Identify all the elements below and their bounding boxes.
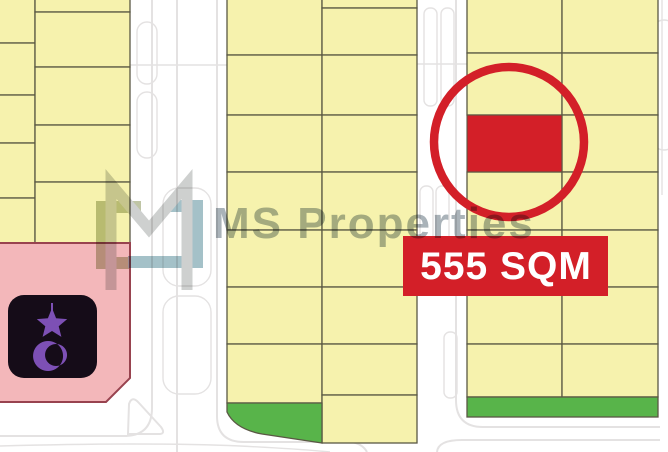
plot [35, 67, 130, 125]
plot [467, 344, 562, 397]
plot [322, 0, 417, 8]
ms-monogram-logo [102, 184, 197, 290]
plot [227, 0, 322, 55]
plot-map-image[interactable]: 555 SQM MS Properties [0, 0, 668, 452]
plot [322, 115, 417, 172]
green-space [227, 403, 322, 443]
parking-bay [137, 92, 157, 158]
plot [467, 0, 562, 53]
plot [322, 55, 417, 115]
plot [562, 115, 658, 172]
curb-line [437, 440, 660, 452]
plot [0, 0, 35, 43]
plot [562, 344, 658, 397]
plot [0, 43, 35, 95]
parking-bay [163, 296, 211, 394]
plot [35, 0, 130, 12]
plot [227, 115, 322, 172]
plot [322, 344, 417, 395]
map-svg: 555 SQM MS Properties [0, 0, 668, 452]
plot [322, 8, 417, 55]
area-label-text: 555 SQM [420, 245, 592, 288]
plot [322, 395, 417, 443]
highlighted-plot[interactable] [467, 115, 562, 172]
parking-bay [424, 8, 437, 106]
plot [35, 125, 130, 182]
plot [227, 55, 322, 115]
plot [227, 344, 322, 403]
watermark-text: MS Properties [213, 199, 535, 248]
plot [467, 53, 562, 115]
plot [227, 287, 322, 344]
plot [35, 12, 130, 67]
plot [322, 287, 417, 344]
plot [0, 95, 35, 143]
plot [0, 198, 35, 243]
plot [0, 143, 35, 198]
curb-line [0, 444, 330, 452]
green-space [467, 397, 658, 417]
star-and-crescent-icon [8, 295, 97, 378]
plot [562, 0, 658, 53]
parking-bay [137, 22, 157, 84]
